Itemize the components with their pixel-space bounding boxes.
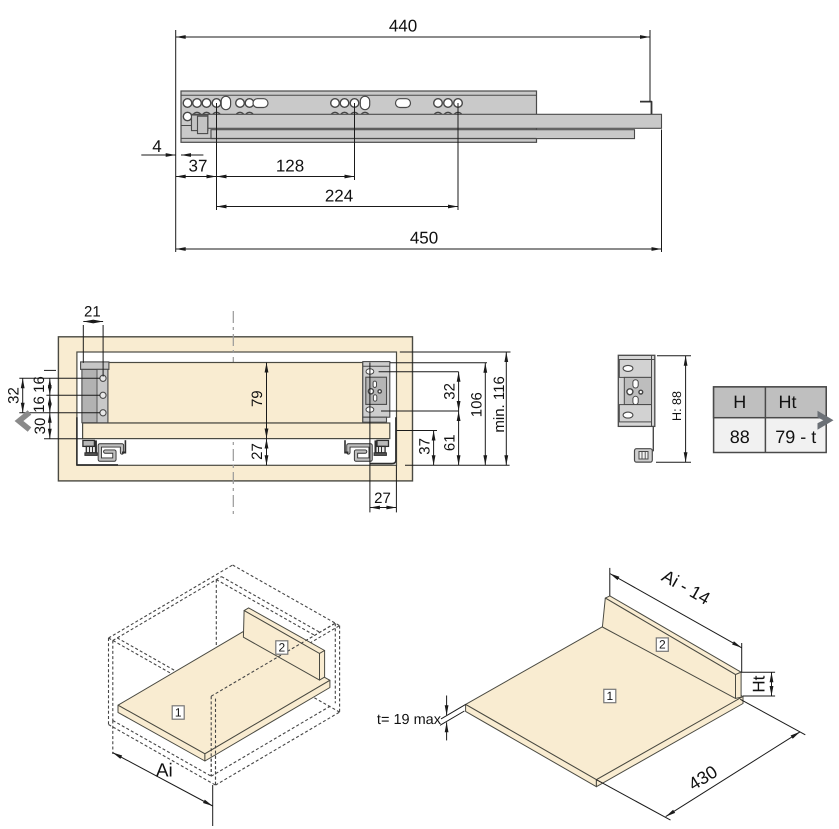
svg-text:430: 430 — [685, 761, 721, 794]
svg-text:88: 88 — [730, 427, 750, 447]
svg-text:440: 440 — [389, 17, 417, 36]
svg-text:27: 27 — [249, 443, 266, 460]
svg-text:128: 128 — [276, 157, 304, 176]
svg-text:t= 19 max: t= 19 max — [377, 712, 442, 728]
svg-text:2: 2 — [659, 638, 666, 652]
svg-text:450: 450 — [410, 229, 438, 248]
svg-text:79 - t: 79 - t — [775, 427, 816, 447]
svg-text:min. 116: min. 116 — [491, 376, 508, 432]
svg-text:Ht: Ht — [750, 675, 769, 692]
svg-text:106: 106 — [469, 392, 486, 417]
svg-text:4: 4 — [152, 137, 161, 156]
svg-text:Ai - 14: Ai - 14 — [658, 566, 713, 609]
svg-text:30: 30 — [32, 418, 49, 435]
svg-text:21: 21 — [84, 304, 101, 321]
svg-text:1: 1 — [175, 706, 182, 720]
svg-text:Ai: Ai — [156, 761, 173, 782]
svg-text:1: 1 — [606, 689, 613, 703]
svg-text:H: 88: H: 88 — [670, 391, 684, 421]
svg-text:16: 16 — [31, 396, 48, 413]
svg-text:27: 27 — [374, 490, 391, 507]
svg-text:37: 37 — [189, 157, 208, 176]
svg-text:37: 37 — [416, 438, 433, 455]
svg-text:2: 2 — [278, 641, 285, 655]
svg-text:79: 79 — [249, 390, 266, 407]
svg-text:16: 16 — [31, 376, 48, 393]
svg-text:32: 32 — [442, 383, 459, 400]
svg-text:32: 32 — [6, 387, 23, 404]
svg-text:Ht: Ht — [779, 392, 797, 412]
svg-text:224: 224 — [325, 187, 353, 206]
svg-text:61: 61 — [442, 434, 459, 451]
svg-text:H: H — [733, 392, 746, 412]
